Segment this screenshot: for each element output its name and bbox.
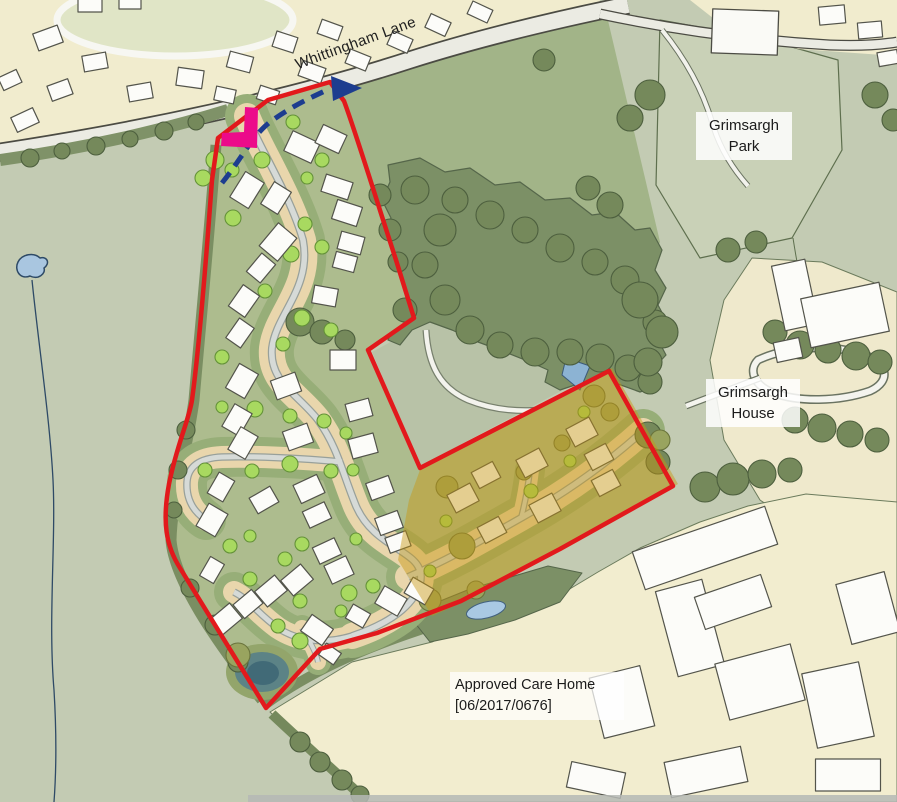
site-masterplan-map: Whittingham Lane Grimsargh Park Grimsarg… xyxy=(0,0,897,802)
grimsargh-house-label-line1: Grimsargh xyxy=(708,382,798,403)
approved-care-home-label-line1: Approved Care Home xyxy=(455,675,619,696)
approved-care-home-label: Approved Care Home [06/2017/0676] xyxy=(450,672,624,720)
grimsargh-park-label-line2: Park xyxy=(698,136,790,157)
grimsargh-house-label: Grimsargh House xyxy=(706,379,800,427)
approved-care-home-label-line2: [06/2017/0676] xyxy=(455,696,619,717)
grimsargh-house-label-line2: House xyxy=(708,403,798,424)
grimsargh-park-label: Grimsargh Park xyxy=(696,112,792,160)
grimsargh-park-label-line1: Grimsargh xyxy=(698,115,790,136)
